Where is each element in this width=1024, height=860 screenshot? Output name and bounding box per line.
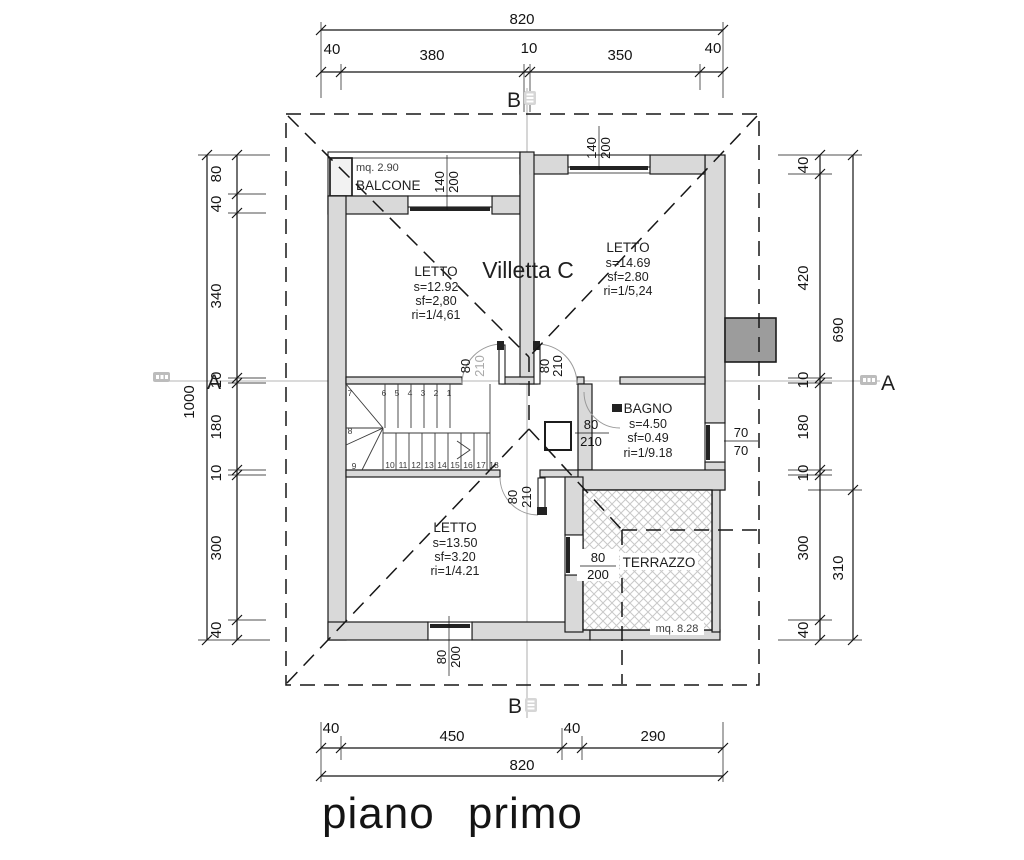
dim-top-total: 820 xyxy=(509,11,534,28)
step-10: 10 xyxy=(385,460,395,470)
dim-right-690: 690 xyxy=(830,317,847,342)
dimension-top: 820 40 380 10 350 40 xyxy=(316,11,728,112)
dim-left-total: 1000 xyxy=(181,385,198,418)
step-15: 15 xyxy=(450,460,460,470)
terrazzo-name: TERRAZZO xyxy=(623,555,696,570)
dim-bot-40l: 40 xyxy=(323,720,340,737)
label-door-bagno-h: 210 xyxy=(580,434,602,449)
letto-nw-name: LETTO xyxy=(414,264,457,279)
dimension-left: 1000 80 40 340 10 180 10 300 40 xyxy=(181,150,270,645)
label-balcone-door-h: 200 xyxy=(446,171,461,193)
section-a-right: A xyxy=(881,372,895,395)
step-1: 1 xyxy=(447,388,452,398)
section-stamp-icon xyxy=(860,375,877,385)
dim-right-40b: 40 xyxy=(795,622,812,639)
label-door-sw-w: 80 xyxy=(505,490,520,504)
balcony-door xyxy=(408,196,492,211)
label-door-nw-h: 210 xyxy=(472,355,487,377)
label-sw-window-h: 200 xyxy=(448,646,463,668)
stair-direction-arrow xyxy=(457,441,470,459)
dim-right-420: 420 xyxy=(795,265,812,290)
stairs: 7 6 5 4 3 2 1 8 9 10 11 12 13 14 15 16 1… xyxy=(346,384,499,471)
sheet-title: piano primo xyxy=(322,789,583,838)
flue-shaft xyxy=(545,422,571,450)
window-bagno xyxy=(705,423,725,462)
letto-sw-s: s=13.50 xyxy=(433,536,478,550)
bagno-ri: ri=1/9.18 xyxy=(624,446,673,460)
bagno-s: s=4.50 xyxy=(629,417,667,431)
step-7: 7 xyxy=(348,388,353,398)
step-12: 12 xyxy=(411,460,421,470)
step-13: 13 xyxy=(424,460,434,470)
label-door-ne-h: 210 xyxy=(550,355,565,377)
letto-ne-s: s=14.69 xyxy=(606,256,651,270)
section-b-top: B xyxy=(507,89,521,112)
label-terrazzo-window-h: 200 xyxy=(587,567,609,582)
dim-bot-450: 450 xyxy=(439,728,464,745)
label-balcone-door-w: 140 xyxy=(432,171,447,193)
section-stamp-icon xyxy=(153,372,170,382)
balcone-area: mq. 2.90 xyxy=(356,162,399,174)
terrazzo-area: mq. 8.28 xyxy=(656,623,699,635)
dim-top-40l: 40 xyxy=(324,41,341,58)
dim-left-40t: 40 xyxy=(208,196,225,213)
step-3: 3 xyxy=(421,388,426,398)
floor-plan-drawing: 7 6 5 4 3 2 1 8 9 10 11 12 13 14 15 16 1… xyxy=(0,0,1024,860)
stair-step-numbers: 7 6 5 4 3 2 1 8 9 10 11 12 13 14 15 16 1… xyxy=(348,388,499,471)
dim-bot-40m: 40 xyxy=(564,720,581,737)
dim-left-40b: 40 xyxy=(208,622,225,639)
letto-sw-ri: ri=1/4.21 xyxy=(431,564,480,578)
dim-bot-total: 820 xyxy=(509,757,534,774)
step-16: 16 xyxy=(463,460,473,470)
label-door-nw-w: 80 xyxy=(458,359,473,373)
label-door-bagno-w: 80 xyxy=(584,417,598,432)
label-sw-window-w: 80 xyxy=(434,650,449,664)
villa-label: Villetta C xyxy=(482,257,574,283)
floor-plan-sheet: 7 6 5 4 3 2 1 8 9 10 11 12 13 14 15 16 1… xyxy=(0,0,1024,860)
step-17: 17 xyxy=(476,460,486,470)
dim-right-10a: 10 xyxy=(795,372,812,389)
dim-right-310: 310 xyxy=(830,555,847,580)
dimension-right: 40 420 10 180 10 300 40 690 310 xyxy=(778,150,862,645)
window-sw xyxy=(428,622,472,640)
dim-top-350: 350 xyxy=(607,47,632,64)
section-stamp-icon xyxy=(524,91,536,105)
dim-left-340: 340 xyxy=(208,283,225,308)
label-ne-window-h: 200 xyxy=(598,137,613,159)
dim-top-10: 10 xyxy=(521,40,538,57)
letto-ne-ri: ri=1/5,24 xyxy=(604,284,653,298)
dim-left-10b: 10 xyxy=(208,465,225,482)
section-a-left: A xyxy=(207,371,221,394)
letto-sw-name: LETTO xyxy=(433,520,476,535)
dimension-bottom: 40 450 40 290 820 xyxy=(316,720,728,782)
letto-nw-sf: sf=2,80 xyxy=(415,294,456,308)
dim-top-380: 380 xyxy=(419,47,444,64)
dim-top-40r: 40 xyxy=(705,40,722,57)
letto-nw-s: s=12.92 xyxy=(414,280,459,294)
step-11: 11 xyxy=(399,460,408,470)
label-bagno-window-h: 70 xyxy=(734,443,748,458)
label-bagno-window-w: 70 xyxy=(734,425,748,440)
step-9: 9 xyxy=(352,461,357,471)
label-door-sw-h: 210 xyxy=(519,486,534,508)
balcone-name: BALCONE xyxy=(356,178,421,193)
letto-nw-ri: ri=1/4,61 xyxy=(412,308,461,322)
step-4: 4 xyxy=(408,388,413,398)
step-2: 2 xyxy=(434,388,439,398)
step-14: 14 xyxy=(437,460,447,470)
label-ne-window-w: 140 xyxy=(584,137,599,159)
letto-ne-name: LETTO xyxy=(606,240,649,255)
step-6: 6 xyxy=(382,388,387,398)
step-5: 5 xyxy=(395,388,400,398)
letto-ne-sf: sf=2.80 xyxy=(607,270,648,284)
section-b-bottom: B xyxy=(508,695,522,718)
section-stamp-icon xyxy=(525,698,537,712)
bagno-sf: sf=0.49 xyxy=(627,431,668,445)
dim-left-180: 180 xyxy=(208,414,225,439)
dim-right-10b: 10 xyxy=(795,465,812,482)
dim-right-300: 300 xyxy=(795,535,812,560)
dim-bot-290: 290 xyxy=(640,728,665,745)
chimney-block xyxy=(725,318,776,362)
step-8: 8 xyxy=(348,426,353,436)
dim-left-80: 80 xyxy=(208,166,225,183)
letto-sw-sf: sf=3.20 xyxy=(434,550,475,564)
dim-right-180: 180 xyxy=(795,414,812,439)
dim-left-300: 300 xyxy=(208,535,225,560)
dim-right-40t: 40 xyxy=(795,157,812,174)
label-terrazzo-window-w: 80 xyxy=(591,550,605,565)
bagno-name: BAGNO xyxy=(624,401,673,416)
